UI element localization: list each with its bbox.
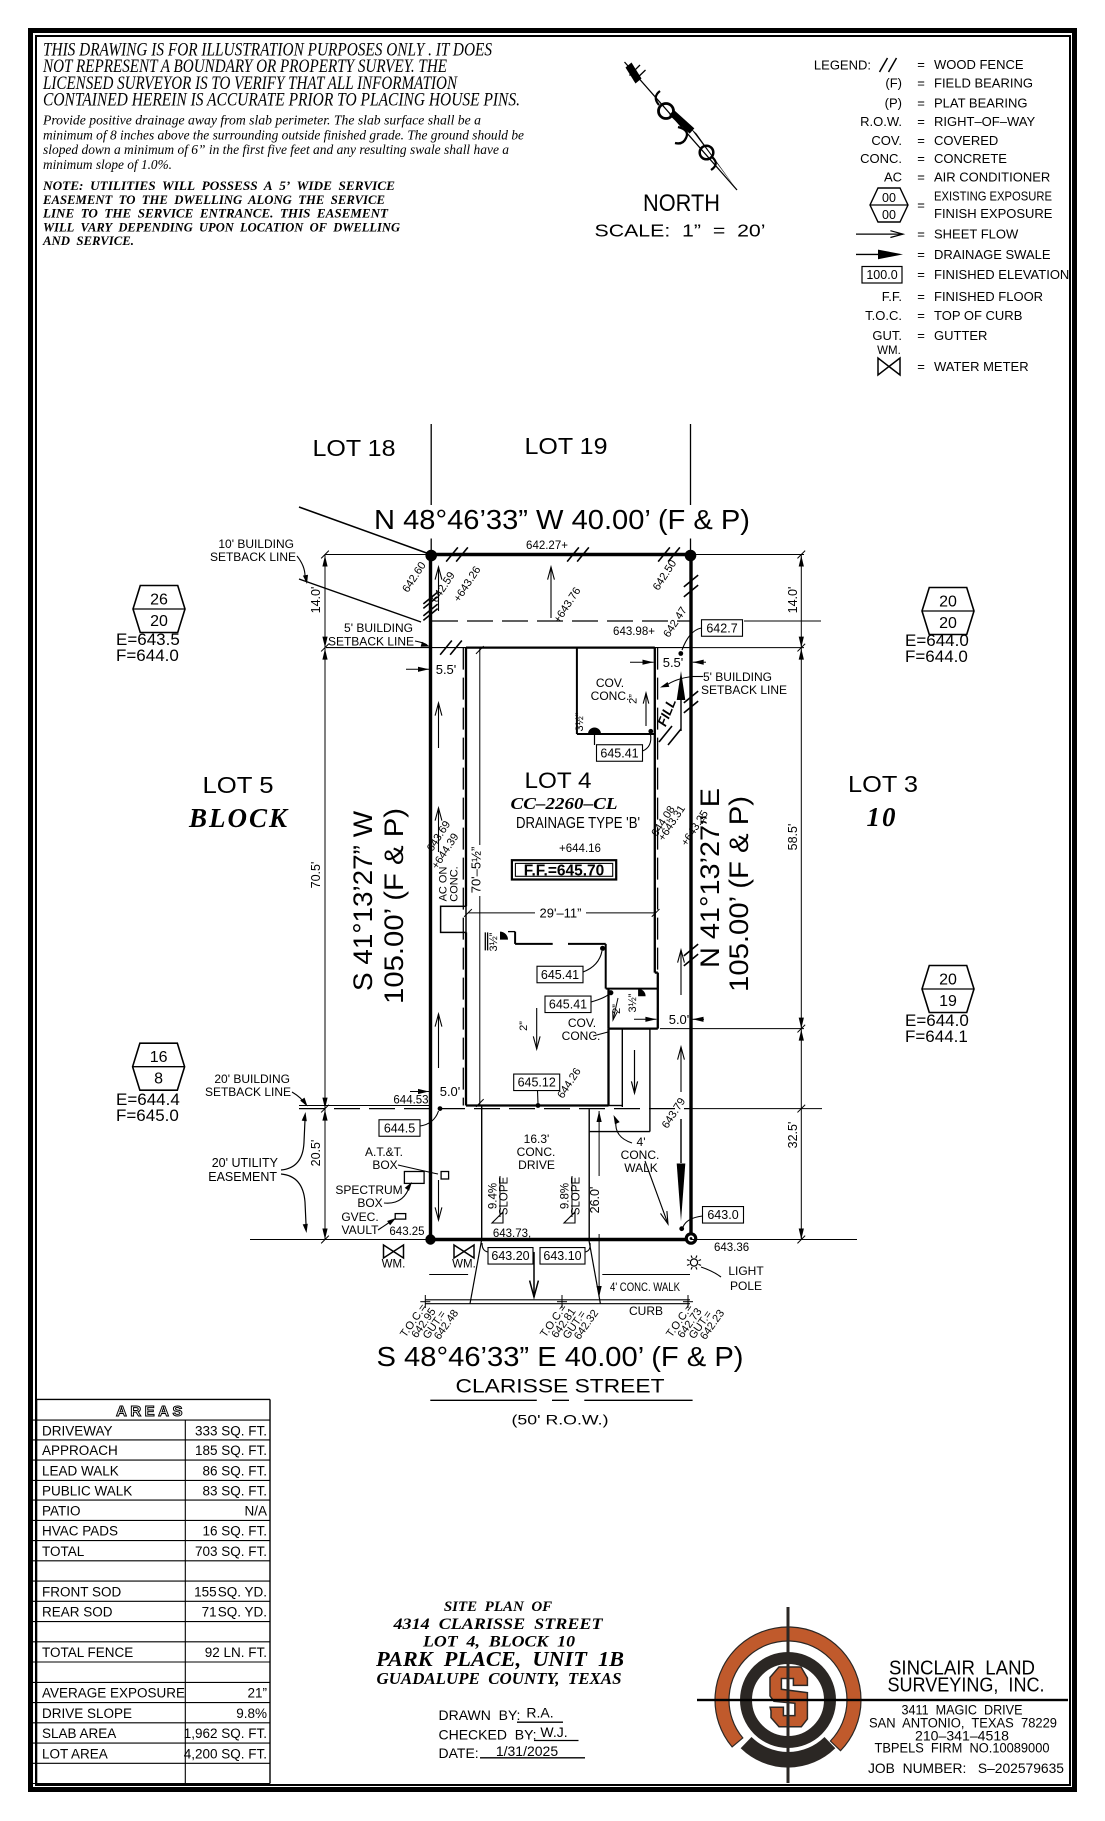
svg-text:92 LN. FT.: 92 LN. FT. [205, 1645, 267, 1660]
svg-text:SURVEYING, INC.: SURVEYING, INC. [888, 1674, 1045, 1697]
svg-text:WATER METER: WATER METER [934, 359, 1029, 374]
svg-text:=: = [917, 267, 925, 282]
svg-text:=: = [917, 227, 925, 242]
svg-text:1,962 SQ. FT.: 1,962 SQ. FT. [184, 1726, 267, 1741]
svg-text:DRAWN BY:: DRAWN BY: [439, 1707, 521, 1723]
svg-text:LOT 3: LOT 3 [848, 771, 918, 797]
svg-text:SETBACK LINE: SETBACK LINE [328, 635, 414, 649]
svg-text:3½”: 3½” [488, 932, 500, 951]
svg-text:642.47: 642.47 [661, 605, 689, 640]
svg-text:WALK: WALK [624, 1161, 658, 1175]
svg-text:SCALE: 1” = 20’: SCALE: 1” = 20’ [595, 221, 766, 241]
svg-text:105.00’ (F & P): 105.00’ (F & P) [379, 808, 409, 1004]
svg-text:VAULT: VAULT [342, 1223, 380, 1237]
svg-text:FRONT SOD: FRONT SOD [42, 1584, 122, 1599]
svg-text:APPROACH: APPROACH [42, 1443, 118, 1458]
svg-text:643.79: 643.79 [660, 1096, 688, 1131]
svg-text:COV.: COV. [596, 676, 624, 690]
svg-text:DRIVE SLOPE: DRIVE SLOPE [42, 1706, 132, 1721]
svg-text:CONC.: CONC. [449, 866, 461, 901]
svg-text:20' BUILDING: 20' BUILDING [214, 1072, 290, 1086]
svg-text:32.5': 32.5' [786, 1122, 800, 1149]
svg-text:9.8%: 9.8% [236, 1706, 267, 1721]
svg-text:A.T.&T.: A.T.&T. [365, 1145, 403, 1159]
svg-text:LOT 4: LOT 4 [525, 768, 592, 793]
svg-text:=: = [917, 289, 925, 304]
svg-text:642.60: 642.60 [400, 560, 428, 595]
svg-text:LEAD WALK: LEAD WALK [42, 1463, 119, 1478]
svg-text:SETBACK LINE: SETBACK LINE [701, 683, 787, 697]
svg-text:AIR CONDITIONER: AIR CONDITIONER [934, 170, 1050, 185]
svg-text:26: 26 [150, 592, 168, 609]
svg-text:RIGHT–OF–WAY: RIGHT–OF–WAY [934, 114, 1035, 129]
svg-text:20' UTILITY: 20' UTILITY [212, 1156, 279, 1170]
svg-text:COVERED: COVERED [934, 133, 998, 148]
svg-text:EXISTING EXPOSURE: EXISTING EXPOSURE [934, 189, 1052, 204]
svg-text:EASEMENT TO THE DWELLING A: EASEMENT TO THE DWELLING ALONG THE SERVI… [42, 193, 385, 207]
svg-text:4,200 SQ. FT.: 4,200 SQ. FT. [184, 1746, 267, 1761]
svg-text:642.7: 642.7 [706, 621, 737, 635]
svg-text:185 SQ. FT.: 185 SQ. FT. [195, 1443, 267, 1458]
svg-text:5.5': 5.5' [663, 655, 684, 670]
svg-text:FILL: FILL [655, 696, 680, 728]
svg-text:CURB: CURB [629, 1304, 663, 1318]
svg-text:4' CONC. WALK: 4' CONC. WALK [610, 1280, 680, 1294]
svg-text:3½”: 3½” [627, 993, 639, 1012]
svg-text:19: 19 [939, 993, 957, 1010]
svg-text:AVERAGE EXPOSURE: AVERAGE EXPOSURE [42, 1686, 185, 1701]
svg-text:SETBACK LINE: SETBACK LINE [205, 1085, 291, 1099]
svg-text:5.0': 5.0' [669, 1012, 690, 1027]
svg-text:CONC.: CONC. [860, 151, 902, 166]
svg-text:TOTAL: TOTAL [42, 1544, 85, 1559]
svg-text:DRIVEWAY: DRIVEWAY [42, 1423, 113, 1438]
svg-text:SHEET FLOW: SHEET FLOW [934, 227, 1019, 242]
svg-text:(50' R.O.W.): (50' R.O.W.) [512, 1412, 609, 1428]
svg-text:644.53: 644.53 [393, 1095, 428, 1107]
svg-text:=: = [917, 96, 925, 111]
svg-text:sloped down a minimum of 6” in: sloped down a minimum of 6” in the first… [43, 143, 509, 158]
svg-text:643.36: 643.36 [714, 1242, 749, 1254]
svg-text:R.A.: R.A. [526, 1705, 553, 1721]
svg-text:DRIVE: DRIVE [518, 1158, 555, 1172]
svg-text:5.5': 5.5' [436, 662, 457, 677]
svg-text:LINE TO THE SERVICE ENTRAN: LINE TO THE SERVICE ENTRANCE. THIS EASEM… [42, 207, 389, 221]
svg-text:F=644.1: F=644.1 [905, 1027, 968, 1046]
svg-text:16.3': 16.3' [524, 1132, 550, 1146]
svg-text:+644.16: +644.16 [559, 843, 601, 855]
svg-text:F.F.=645.70: F.F.=645.70 [524, 862, 605, 879]
svg-text:=: = [917, 133, 925, 148]
svg-text:LOT AREA: LOT AREA [42, 1746, 108, 1761]
svg-text:643.98+: 643.98+ [613, 626, 655, 638]
svg-text:645.41: 645.41 [541, 968, 579, 982]
svg-text:T.O.C.: T.O.C. [865, 308, 902, 323]
svg-text:CLARISSE STREET: CLARISSE STREET [456, 1376, 665, 1398]
svg-text:WOOD FENCE: WOOD FENCE [934, 57, 1024, 72]
svg-text:=: = [917, 247, 925, 262]
svg-text:WILL VARY DEPENDING UPON L: WILL VARY DEPENDING UPON LOCATION OF DWE… [43, 220, 401, 234]
svg-text:333 SQ. FT.: 333 SQ. FT. [195, 1423, 267, 1438]
svg-text:SITE PLAN OF: SITE PLAN OF [444, 1599, 552, 1615]
svg-text:4': 4' [637, 1135, 646, 1149]
svg-text:71 SQ. YD.: 71 SQ. YD. [202, 1605, 267, 1620]
svg-text:29'–11”: 29'–11” [540, 905, 582, 920]
svg-text:20: 20 [939, 615, 957, 632]
svg-text:643.10: 643.10 [543, 1249, 581, 1263]
svg-text:643.73,: 643.73, [493, 1228, 531, 1240]
svg-text:SETBACK LINE: SETBACK LINE [210, 550, 296, 564]
svg-text:21”: 21” [247, 1686, 267, 1701]
svg-text:20: 20 [939, 594, 957, 611]
svg-text:FIELD BEARING: FIELD BEARING [934, 75, 1033, 90]
svg-text:CONC.: CONC. [591, 689, 630, 703]
svg-text:00: 00 [882, 191, 896, 205]
svg-text:3½”: 3½” [574, 712, 586, 731]
svg-text:70.5': 70.5' [309, 862, 323, 889]
svg-text:minimum of 8 inches above the: minimum of 8 inches above the surroundin… [43, 128, 524, 143]
svg-text:645.12: 645.12 [518, 1076, 556, 1090]
svg-text:BLOCK: BLOCK [188, 803, 289, 833]
svg-text:FINISH EXPOSURE: FINISH EXPOSURE [934, 206, 1053, 221]
svg-text:DATE:: DATE: [439, 1745, 479, 1761]
svg-text:JOB NUMBER: S–202579635: JOB NUMBER: S–202579635 [868, 1760, 1064, 1776]
svg-text:SPECTRUM: SPECTRUM [335, 1183, 402, 1197]
svg-text:BOX: BOX [372, 1158, 397, 1172]
svg-text:=: = [917, 328, 925, 343]
svg-text:105.00’ (F & P): 105.00’ (F & P) [724, 796, 754, 992]
svg-text:HVAC PADS: HVAC PADS [42, 1524, 118, 1539]
svg-text:R.O.W.: R.O.W. [860, 114, 902, 129]
svg-text:POLE: POLE [730, 1279, 762, 1293]
svg-text:W.J.: W.J. [540, 1724, 567, 1740]
svg-text:CC–2260–CL: CC–2260–CL [511, 794, 618, 813]
svg-text:GUT.: GUT. [872, 328, 902, 343]
svg-text:S 48°46’33” E 40.00’ (F & P): S 48°46’33” E 40.00’ (F & P) [377, 1341, 744, 1372]
svg-text:S 41°13’27” W: S 41°13’27” W [348, 810, 378, 991]
svg-text:F.F.: F.F. [882, 289, 902, 304]
svg-text:=: = [917, 198, 925, 213]
svg-text:=: = [917, 75, 925, 90]
svg-text:26.0': 26.0' [588, 1187, 602, 1214]
svg-text:TBPELS FIRM NO.10089000: TBPELS FIRM NO.10089000 [875, 1741, 1050, 1756]
svg-text:NOTE: UTILITIES WILL POSSES: NOTE: UTILITIES WILL POSSESS A 5’ WIDE S… [42, 179, 395, 193]
svg-text:DRAINAGE TYPE 'B': DRAINAGE TYPE 'B' [516, 815, 640, 832]
svg-text:643.25: 643.25 [389, 1226, 424, 1238]
svg-text:+643.26: +643.26 [452, 564, 484, 604]
svg-text:2”: 2” [628, 694, 640, 704]
svg-text:=: = [917, 151, 925, 166]
svg-text:645.41: 645.41 [549, 998, 587, 1012]
svg-text:20: 20 [150, 613, 168, 630]
svg-text:10' BUILDING: 10' BUILDING [218, 537, 294, 551]
svg-text:643.0: 643.0 [707, 1208, 738, 1222]
svg-text:(P): (P) [885, 96, 902, 111]
svg-text:NORTH: NORTH [643, 190, 720, 217]
svg-text:155 SQ. YD.: 155 SQ. YD. [194, 1584, 267, 1599]
svg-text:100.0: 100.0 [866, 268, 897, 282]
svg-text:=: = [917, 308, 925, 323]
svg-text:16 SQ. FT.: 16 SQ. FT. [202, 1524, 267, 1539]
svg-text:GVEC.: GVEC. [341, 1210, 378, 1224]
svg-text:LIGHT: LIGHT [728, 1264, 764, 1278]
svg-text:5' BUILDING: 5' BUILDING [703, 670, 772, 684]
svg-text:F=644.0: F=644.0 [905, 647, 968, 666]
svg-text:EASEMENT: EASEMENT [208, 1170, 277, 1184]
svg-text:5' BUILDING: 5' BUILDING [344, 621, 413, 635]
svg-text:643.20: 643.20 [491, 1249, 529, 1263]
svg-text:DRAINAGE SWALE: DRAINAGE SWALE [934, 247, 1051, 262]
svg-text:+643.76: +643.76 [552, 585, 584, 625]
svg-text:FINISHED FLOOR: FINISHED FLOOR [934, 289, 1043, 304]
svg-text:86 SQ. FT.: 86 SQ. FT. [202, 1463, 267, 1478]
svg-text:TOTAL FENCE: TOTAL FENCE [42, 1645, 133, 1660]
svg-text:20: 20 [939, 972, 957, 989]
svg-text:CHECKED BY:: CHECKED BY: [439, 1727, 537, 1743]
svg-text:AND SERVICE.: AND SERVICE. [42, 234, 134, 248]
svg-text:10: 10 [867, 802, 898, 832]
svg-text:CONTAINED HEREIN IS ACCURATE P: CONTAINED HEREIN IS ACCURATE PRIOR TO PL… [43, 90, 520, 111]
svg-text:FINISHED ELEVATION: FINISHED ELEVATION [934, 267, 1069, 282]
svg-text:642.50: 642.50 [651, 558, 679, 593]
svg-text:645.41: 645.41 [600, 746, 638, 760]
svg-text:LOT 5: LOT 5 [203, 772, 274, 798]
svg-text:=: = [917, 114, 925, 129]
svg-text:20.5': 20.5' [309, 1140, 323, 1167]
svg-text:4314 CLARISSE STREET: 4314 CLARISSE STREET [392, 1616, 604, 1633]
svg-text:TOP OF CURB: TOP OF CURB [934, 308, 1022, 323]
svg-text:644.5: 644.5 [384, 1121, 415, 1135]
svg-text:14.0': 14.0' [786, 587, 800, 614]
svg-text:PARK PLACE, UNIT 1B: PARK PLACE, UNIT 1B [375, 1647, 624, 1671]
svg-text:703 SQ. FT.: 703 SQ. FT. [195, 1544, 267, 1559]
svg-text:(F): (F) [885, 75, 902, 90]
svg-text:00: 00 [882, 208, 896, 222]
svg-text:5.0': 5.0' [440, 1084, 461, 1099]
svg-text:LOT 18: LOT 18 [313, 435, 396, 461]
svg-text:F=644.0: F=644.0 [116, 646, 179, 665]
svg-text:minimum slope of 1.0%.: minimum slope of 1.0%. [43, 158, 172, 173]
svg-text:2”: 2” [518, 1021, 530, 1031]
svg-text:8: 8 [154, 1071, 163, 1088]
svg-text:14.0': 14.0' [309, 587, 323, 614]
svg-text:Provide positive drainage away: Provide positive drainage away from slab… [42, 114, 481, 129]
svg-text:=: = [917, 57, 925, 72]
svg-text:=: = [917, 359, 925, 374]
svg-text:REAR SOD: REAR SOD [42, 1605, 113, 1620]
svg-text:N/A: N/A [244, 1503, 267, 1518]
svg-text:LOT 19: LOT 19 [525, 433, 608, 459]
svg-text:F=645.0: F=645.0 [116, 1106, 179, 1125]
svg-text:N 48°46’33” W 40.00’ (F & P): N 48°46’33” W 40.00’ (F & P) [374, 504, 750, 535]
svg-text:=: = [917, 170, 925, 185]
svg-text:70'–5½”: 70'–5½” [469, 847, 484, 894]
svg-text:WM.: WM. [452, 1259, 476, 1271]
svg-text:1/31/2025: 1/31/2025 [496, 1743, 558, 1759]
svg-text:642.27+: 642.27+ [526, 540, 568, 552]
svg-text:COV.: COV. [568, 1016, 596, 1030]
svg-text:WM.: WM. [877, 345, 901, 357]
svg-text:WM.: WM. [382, 1259, 406, 1271]
svg-text:83 SQ. FT.: 83 SQ. FT. [202, 1484, 267, 1499]
svg-text:AREAS: AREAS [116, 1403, 186, 1420]
svg-text:PATIO: PATIO [42, 1503, 81, 1518]
svg-text:GUADALUPE COUNTY, TEXAS: GUADALUPE COUNTY, TEXAS [377, 1669, 622, 1688]
svg-text:PUBLIC WALK: PUBLIC WALK [42, 1484, 132, 1499]
svg-text:COV.: COV. [871, 133, 902, 148]
svg-text:BOX: BOX [357, 1196, 382, 1210]
svg-text:58.5': 58.5' [786, 824, 800, 851]
svg-text:SLAB AREA: SLAB AREA [42, 1726, 116, 1741]
svg-text:CONC.: CONC. [517, 1145, 556, 1159]
svg-text:LEGEND:: LEGEND: [814, 58, 871, 73]
svg-text:16: 16 [150, 1049, 168, 1066]
svg-text:AC: AC [884, 170, 902, 185]
svg-text:CONC.: CONC. [621, 1148, 660, 1162]
svg-text:CONCRETE: CONCRETE [934, 151, 1007, 166]
svg-text:GUTTER: GUTTER [934, 328, 987, 343]
svg-text:PLAT BEARING: PLAT BEARING [934, 96, 1027, 111]
